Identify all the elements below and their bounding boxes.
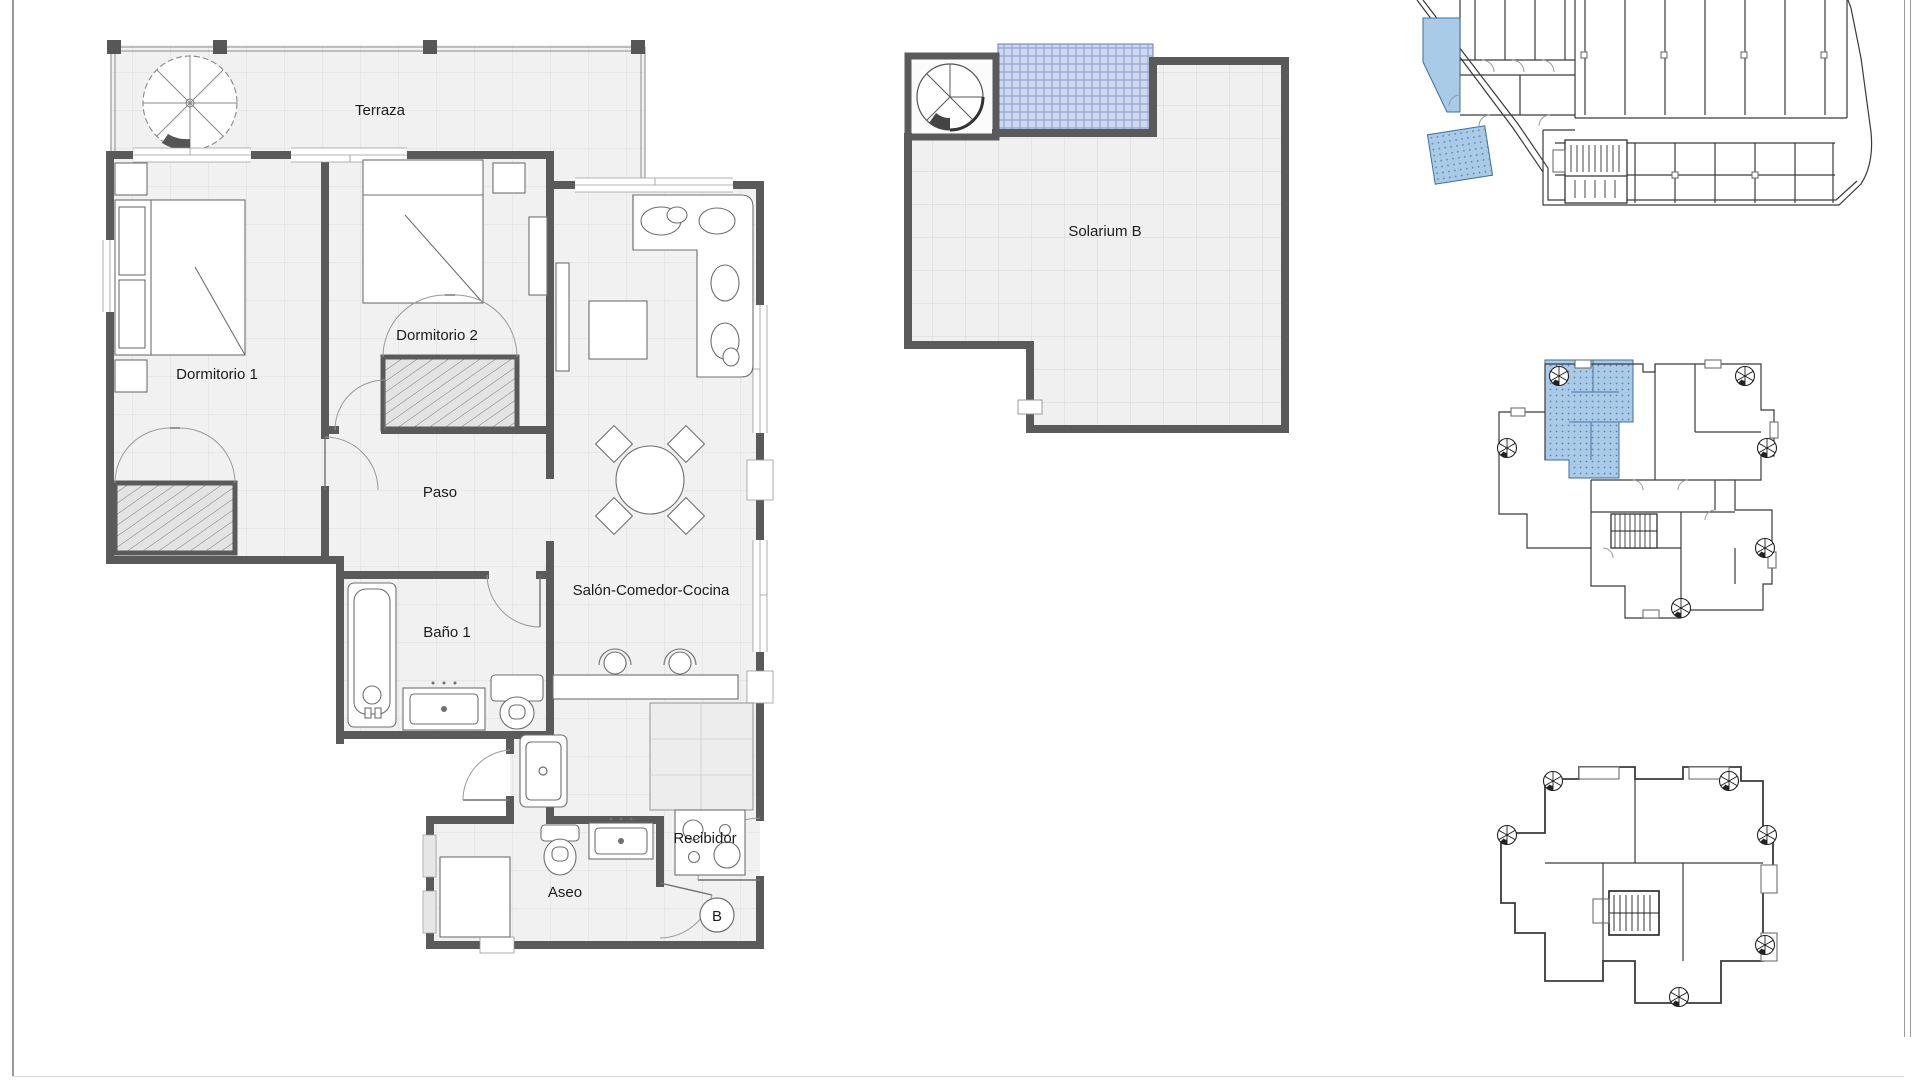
- stair-enclosure: [908, 56, 996, 137]
- window: [753, 540, 767, 652]
- spiral-stair-icon: [1758, 826, 1777, 845]
- door-arc: [463, 750, 510, 800]
- page-border-left: [12, 0, 14, 1076]
- toilet-icon: [541, 825, 579, 875]
- page-border-right-outer: [1910, 0, 1911, 1037]
- kitchen-sink-icon: [520, 735, 567, 807]
- main-floor-plan: B Terraza Dormitorio 1 Dormitorio 2 Paso…: [95, 35, 795, 965]
- spiral-stair-icon: [1550, 367, 1569, 386]
- unit-marker-b: B: [700, 898, 734, 932]
- stairs-icon: [1553, 140, 1627, 203]
- spiral-stair-icon: [1756, 539, 1775, 558]
- coffee-table-icon: [589, 301, 647, 359]
- spiral-stair-icon: [1736, 367, 1755, 386]
- room-label-solarium: Solarium B: [1068, 223, 1141, 240]
- room-label-dormitorio1: Dormitorio 1: [176, 366, 258, 383]
- page-border-bottom: [12, 1076, 1904, 1077]
- insulation-block: [423, 891, 436, 933]
- floor-key-plan: [1483, 352, 1783, 632]
- room-label-paso: Paso: [423, 484, 457, 501]
- window: [575, 178, 733, 192]
- spiral-stair-icon: [1720, 772, 1739, 791]
- spiral-stair-icon: [1544, 772, 1563, 791]
- window: [753, 305, 767, 433]
- bathtub-icon: [348, 583, 396, 727]
- room-label-terraza: Terraza: [355, 102, 406, 119]
- spiral-stair-icon: [1498, 826, 1517, 845]
- room-label-bano1: Baño 1: [423, 624, 471, 641]
- garage-plan: [1415, 0, 1885, 245]
- washbasin-icon: [403, 682, 485, 731]
- spiral-stair-icon: [1670, 988, 1689, 1007]
- room-label-aseo: Aseo: [548, 884, 582, 901]
- unit-marker-label: B: [712, 908, 722, 925]
- spiral-stair-icon: [1498, 439, 1517, 458]
- solarium-plan: Solarium B: [900, 40, 1295, 440]
- page-border-right: [1904, 0, 1905, 1037]
- window: [133, 148, 251, 162]
- parking-spaces: [1575, 0, 1847, 118]
- washer-icon: [440, 857, 510, 937]
- room-label-dormitorio2: Dormitorio 2: [396, 327, 478, 344]
- wall-pillar: [747, 671, 773, 703]
- storage-rooms: [1460, 0, 1575, 126]
- spiral-staircase-icon: [917, 64, 983, 130]
- tv-unit-icon: [556, 263, 569, 371]
- washbasin-icon: [589, 818, 653, 860]
- kitchen-counter: [650, 703, 753, 810]
- spiral-stair-icon: [1756, 936, 1775, 955]
- parking-space-highlight: [1427, 126, 1492, 184]
- wall-notch: [480, 937, 514, 953]
- floor-plan-page: B Terraza Dormitorio 1 Dormitorio 2 Paso…: [0, 0, 1920, 1080]
- room-label-recibidor: Recibidor: [673, 830, 736, 847]
- storage-room-highlight: [1423, 18, 1460, 112]
- spiral-stair-icon: [1758, 439, 1777, 458]
- roof-key-plan: [1483, 745, 1783, 1020]
- spiral-staircase-icon: [143, 56, 237, 150]
- desk-icon: [529, 217, 547, 295]
- insulation-block: [423, 835, 436, 877]
- stairs-icon: [1611, 514, 1657, 548]
- wall-pillar: [747, 460, 773, 500]
- room-label-salon: Salón-Comedor-Cocina: [573, 582, 730, 599]
- pergola-hatch: [998, 44, 1153, 133]
- spiral-stair-icon: [1672, 599, 1691, 618]
